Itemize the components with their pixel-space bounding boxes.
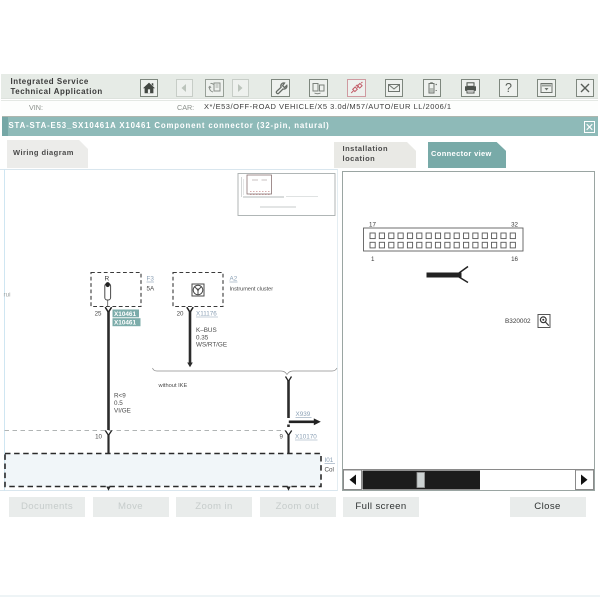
svg-text:X10461: X10461 (114, 311, 136, 318)
svg-text:X11176: X11176 (196, 310, 217, 317)
svg-text:R<9: R<9 (114, 392, 126, 399)
svg-text:1: 1 (371, 256, 375, 263)
svg-text:16: 16 (511, 256, 518, 263)
svg-text:17: 17 (369, 222, 376, 229)
svg-text:rui: rui (4, 291, 11, 298)
svg-text:X939: X939 (296, 411, 311, 418)
svg-text:9: 9 (280, 433, 284, 440)
svg-text:0.5: 0.5 (114, 400, 123, 407)
svg-text:10: 10 (95, 433, 102, 440)
svg-text:X10170: X10170 (295, 433, 317, 440)
svg-text:Col: Col (325, 466, 334, 473)
svg-text:I01: I01 (325, 457, 334, 464)
svg-text:20: 20 (177, 310, 184, 317)
svg-text:25: 25 (95, 310, 102, 317)
svg-text:WS/RT/GE: WS/RT/GE (196, 341, 227, 348)
svg-text:A2: A2 (230, 275, 238, 282)
svg-text:Instrument cluster: Instrument cluster (230, 286, 274, 292)
svg-text:5A: 5A (147, 285, 156, 292)
svg-text:K–BUS: K–BUS (196, 327, 217, 334)
svg-text:X10461: X10461 (114, 319, 136, 326)
svg-text:without IKE: without IKE (158, 383, 188, 389)
svg-text:F3: F3 (147, 275, 155, 282)
svg-text:0.35: 0.35 (196, 334, 209, 341)
svg-text:B320002: B320002 (505, 318, 531, 325)
svg-text:VI/GE: VI/GE (114, 407, 131, 414)
svg-text:R: R (105, 275, 110, 282)
svg-text:32: 32 (511, 222, 518, 229)
